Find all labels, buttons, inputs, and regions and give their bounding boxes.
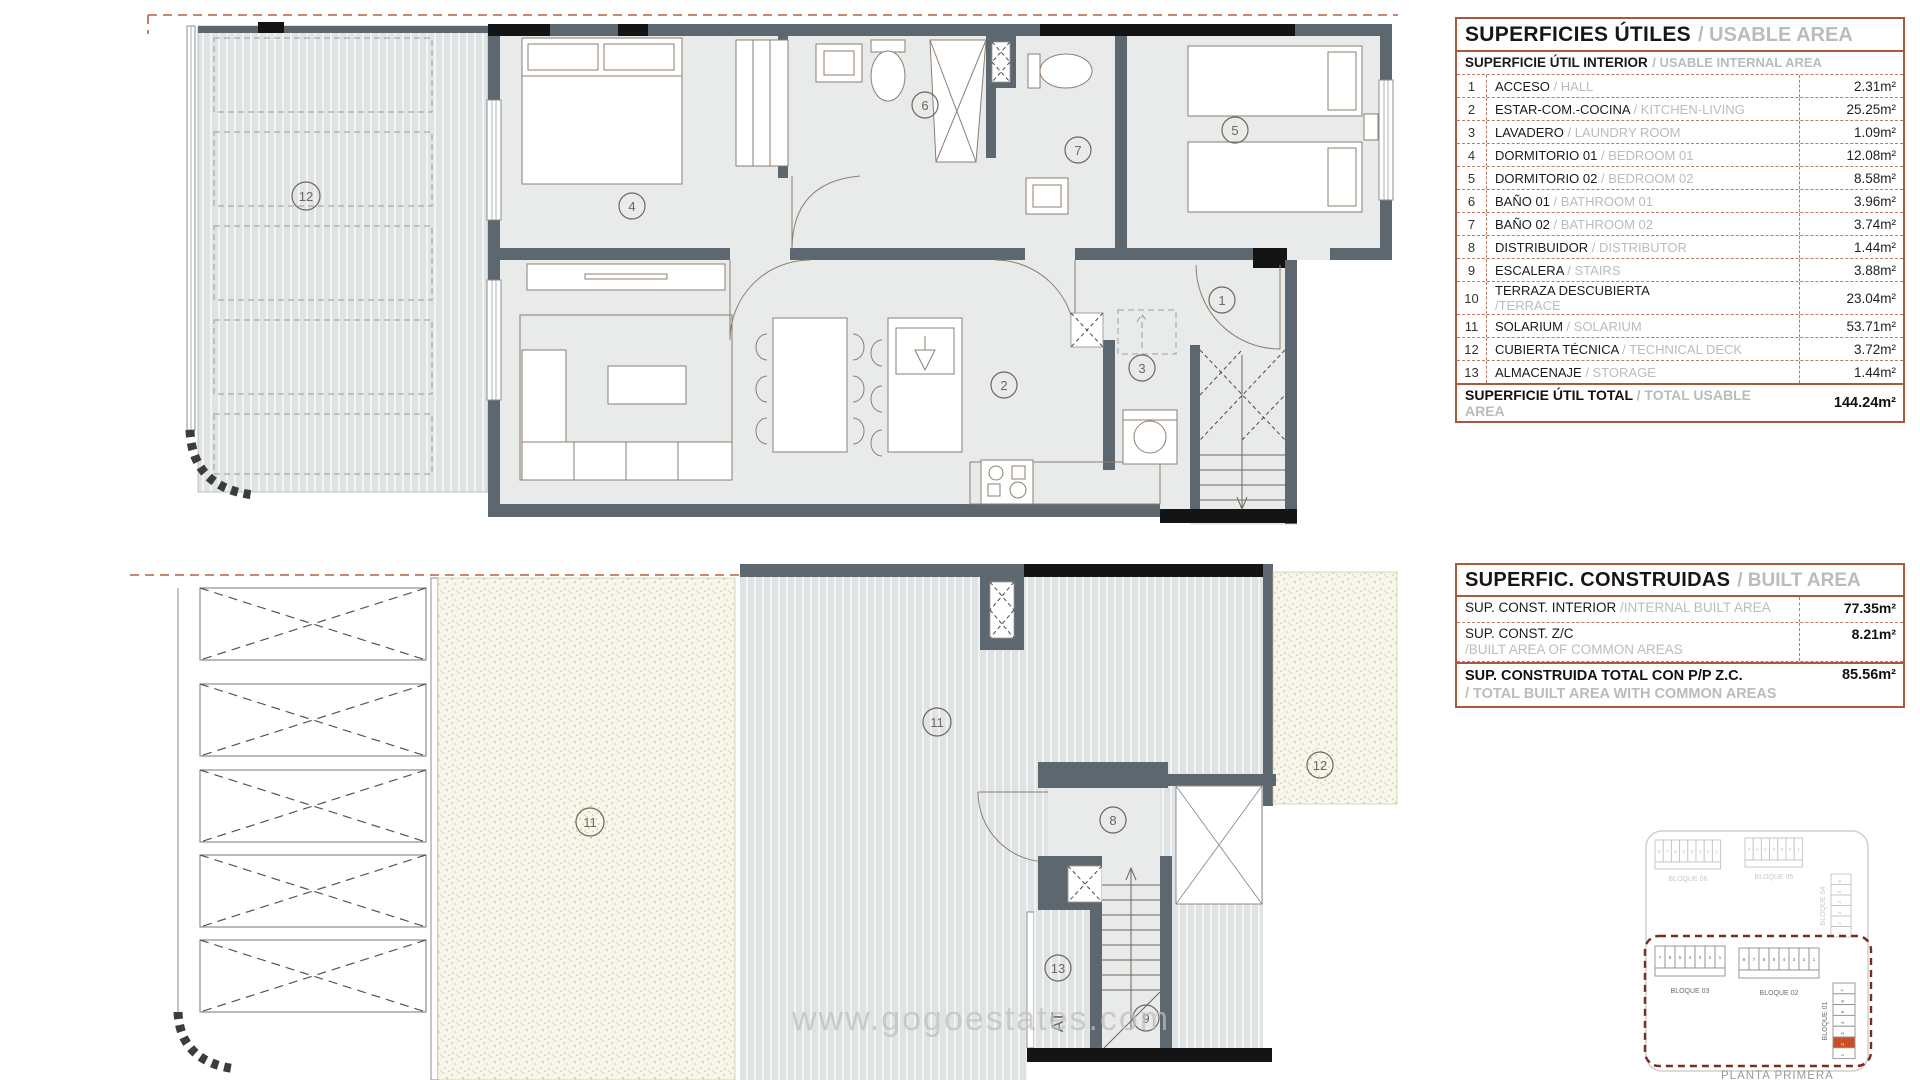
area-row: 2ESTAR-COM.-COCINA / KITCHEN-LIVING25.25… <box>1457 98 1903 121</box>
floor-plan-lower: AT 11 11 12 8 13 9 <box>130 560 1400 1080</box>
total-value: 85.56m² <box>1793 664 1903 683</box>
watermark: www.gogoestates.com <box>792 1000 1170 1039</box>
svg-text:6: 6 <box>1756 847 1759 853</box>
area-row: 6BAÑO 01 / BATHROOM 013.96m² <box>1457 190 1903 213</box>
area-row: 8DISTRIBUIDOR / DISTRIBUTOR1.44m² <box>1457 236 1903 259</box>
room-label: 11 <box>930 715 944 730</box>
svg-text:5: 5 <box>1840 1010 1846 1013</box>
lift-shaft <box>1166 774 1276 904</box>
svg-text:5: 5 <box>1682 849 1685 855</box>
svg-text:7: 7 <box>1748 847 1751 853</box>
area-row: 5DORMITORIO 02 / BEDROOM 028.58m² <box>1457 167 1903 190</box>
svg-text:2: 2 <box>1707 849 1710 855</box>
svg-text:3: 3 <box>1699 955 1702 961</box>
siteplan-block-label: BLOQUE 02 <box>1760 990 1799 997</box>
svg-text:6: 6 <box>1763 957 1766 963</box>
total-label-en: / TOTAL BUILT AREA WITH COMMON AREAS <box>1465 686 1776 702</box>
area-row: 4DORMITORIO 01 / BEDROOM 0112.08m² <box>1457 144 1903 167</box>
siteplan-block-label: BLOQUE 05 <box>1755 874 1794 881</box>
svg-text:2: 2 <box>1840 1043 1846 1046</box>
svg-text:4: 4 <box>1772 847 1775 853</box>
built-area-header: SUPERFIC. CONSTRUIDAS / BUILT AREA <box>1457 565 1903 597</box>
area-row: 1ACCESO / HALL2.31m² <box>1457 75 1903 98</box>
area-row: 13ALMACENAJE / STORAGE1.44m² <box>1457 361 1903 383</box>
terrace-12 <box>187 22 488 495</box>
siteplan-caption: PLANTA PRIMERA <box>1721 1070 1834 1080</box>
total-value: 144.24m² <box>1793 395 1903 411</box>
svg-text:6: 6 <box>1840 1000 1846 1003</box>
svg-text:4: 4 <box>1840 1021 1846 1024</box>
total-label-es: SUPERFICIE ÚTIL TOTAL <box>1465 387 1633 403</box>
svg-text:1: 1 <box>1837 932 1843 935</box>
svg-text:7: 7 <box>1753 957 1756 963</box>
built-area-rows: SUP. CONST. INTERIOR /INTERNAL BUILT ARE… <box>1457 597 1903 662</box>
room-label: 4 <box>628 199 635 214</box>
usable-area-rows: 1ACCESO / HALL2.31m²2ESTAR-COM.-COCINA /… <box>1457 75 1903 383</box>
subtitle-en: / USABLE INTERNAL AREA <box>1652 55 1822 70</box>
area-row: 3LAVADERO / LAUNDRY ROOM1.09m² <box>1457 121 1903 144</box>
subtitle-es: SUPERFICIE ÚTIL INTERIOR <box>1465 55 1648 70</box>
svg-text:2: 2 <box>1789 847 1792 853</box>
svg-text:8: 8 <box>1658 849 1661 855</box>
svg-text:4: 4 <box>1837 901 1843 904</box>
usable-area-subheader: SUPERFICIE ÚTIL INTERIOR / USABLE INTERN… <box>1457 52 1903 75</box>
svg-text:6: 6 <box>1669 955 1672 961</box>
room-label: 13 <box>1051 961 1065 976</box>
svg-text:5: 5 <box>1764 847 1767 853</box>
svg-text:4: 4 <box>1689 955 1692 961</box>
svg-text:5: 5 <box>1679 955 1682 961</box>
room-label: 11 <box>583 815 597 830</box>
svg-text:4: 4 <box>1783 957 1786 963</box>
area-row: SUP. CONST. INTERIOR /INTERNAL BUILT ARE… <box>1457 597 1903 623</box>
svg-text:2: 2 <box>1803 957 1806 963</box>
built-area-total: SUP. CONSTRUIDA TOTAL CON P/P Z.C. / TOT… <box>1457 662 1903 706</box>
table-title-en: / USABLE AREA <box>1698 24 1853 47</box>
svg-text:4: 4 <box>1691 849 1694 855</box>
svg-text:6: 6 <box>1837 880 1843 883</box>
svg-text:5: 5 <box>1837 890 1843 893</box>
area-row: 12CUBIERTA TÉCNICA / TECHNICAL DECK3.72m… <box>1457 338 1903 361</box>
svg-text:8: 8 <box>1743 957 1746 963</box>
svg-text:5: 5 <box>1773 957 1776 963</box>
room-label: 7 <box>1074 143 1081 158</box>
area-row: 11SOLARIUM / SOLARIUM53.71m² <box>1457 315 1903 338</box>
area-row: 10TERRAZA DESCUBIERTA/TERRACE23.04m² <box>1457 282 1903 315</box>
svg-text:1: 1 <box>1797 847 1800 853</box>
area-row: SUP. CONST. Z/C/BUILT AREA OF COMMON ARE… <box>1457 623 1903 662</box>
room-label: 1 <box>1218 293 1225 308</box>
svg-text:1: 1 <box>1813 957 1816 963</box>
svg-text:1: 1 <box>1719 955 1722 961</box>
bedroom4-furniture <box>522 38 788 184</box>
room-label: 6 <box>921 98 928 113</box>
area-row: 7BAÑO 02 / BATHROOM 023.74m² <box>1457 213 1903 236</box>
room-label: 5 <box>1231 123 1238 138</box>
svg-text:3: 3 <box>1699 849 1702 855</box>
svg-text:3: 3 <box>1840 1032 1846 1035</box>
parking-area <box>178 588 426 1069</box>
usable-area-table: SUPERFICIES ÚTILES / USABLE AREA SUPERFI… <box>1455 17 1905 423</box>
table-title-es: SUPERFIC. CONSTRUIDAS <box>1465 569 1730 592</box>
usable-area-header: SUPERFICIES ÚTILES / USABLE AREA <box>1457 19 1903 52</box>
floor-plan-upper: 12 4 6 7 5 1 2 3 <box>130 10 1400 540</box>
built-area-table: SUPERFIC. CONSTRUIDAS / BUILT AREA SUP. … <box>1455 563 1905 708</box>
siteplan-block-label: BLOQUE 06 <box>1669 876 1708 883</box>
svg-text:2: 2 <box>1837 922 1843 925</box>
svg-text:3: 3 <box>1837 911 1843 914</box>
site-key-plan: 87654321BLOQUE 067654321BLOQUE 05654321B… <box>1643 828 1915 1080</box>
area-row: 9ESCALERA / STAIRS3.88m² <box>1457 259 1903 282</box>
technical-deck <box>1263 564 1400 1080</box>
room-label: 12 <box>299 189 313 204</box>
total-label-es: SUP. CONSTRUIDA TOTAL CON P/P Z.C. <box>1465 668 1743 684</box>
svg-text:1: 1 <box>1840 1054 1846 1057</box>
svg-text:6: 6 <box>1674 849 1677 855</box>
room-label: 3 <box>1138 361 1145 376</box>
room-label: 12 <box>1313 758 1327 773</box>
room-label: 8 <box>1109 813 1116 828</box>
siteplan-block-label: BLOQUE 01 <box>1822 1001 1829 1040</box>
usable-area-total: SUPERFICIE ÚTIL TOTAL / TOTAL USABLE ARE… <box>1457 383 1903 421</box>
svg-text:3: 3 <box>1781 847 1784 853</box>
svg-text:7: 7 <box>1666 849 1669 855</box>
svg-text:3: 3 <box>1793 957 1796 963</box>
svg-text:1: 1 <box>1715 849 1718 855</box>
svg-text:7: 7 <box>1659 955 1662 961</box>
room-label: 2 <box>1000 378 1007 393</box>
siteplan-block-label: BLOQUE 04 <box>1820 886 1827 925</box>
table-title-en: / BUILT AREA <box>1737 570 1861 592</box>
table-title-es: SUPERFICIES ÚTILES <box>1465 23 1691 47</box>
svg-text:7: 7 <box>1840 989 1846 992</box>
svg-text:2: 2 <box>1709 955 1712 961</box>
siteplan-block-label: BLOQUE 03 <box>1671 988 1710 995</box>
